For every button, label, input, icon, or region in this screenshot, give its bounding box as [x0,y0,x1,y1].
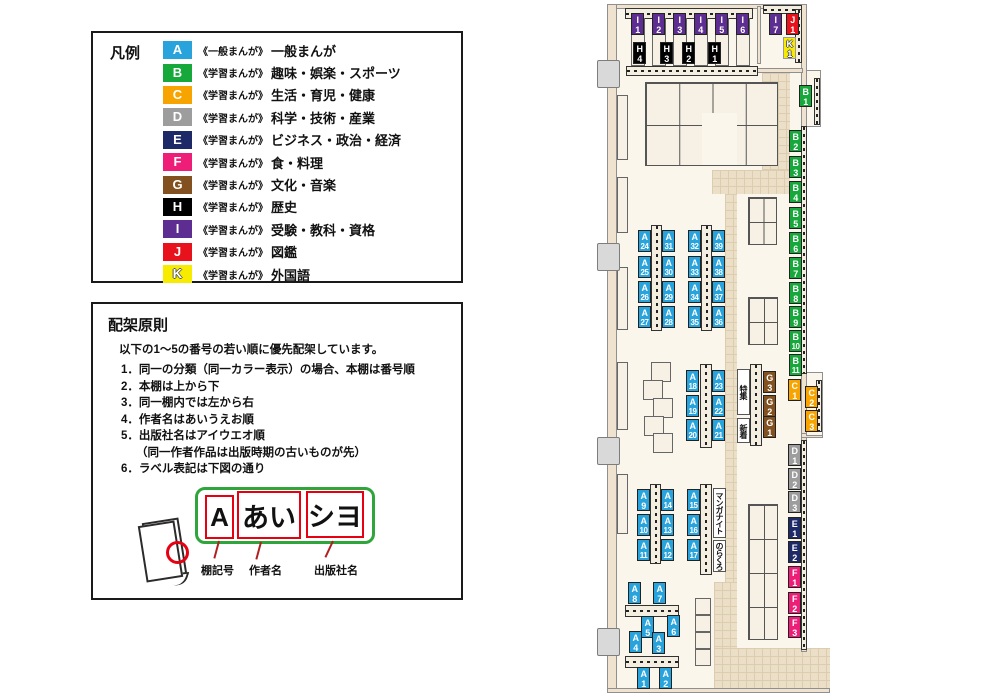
shelf-table [617,267,628,330]
shelf-label-i5: I5 [715,13,728,35]
shelf-dash-strip [750,364,762,446]
shelf-label-a19: A19 [686,395,699,417]
shelf-label-a6: A6 [667,615,680,637]
shelf-label-a22: A22 [712,395,725,417]
page: 凡例 A《一般まんが》一般まんがB《学習まんが》趣味・娯楽・スポーツC《学習まん… [0,0,1000,700]
shelf-label-c2: C2 [805,386,818,408]
shelf-label-b4: B4 [789,181,802,203]
wall-segment [757,68,803,73]
shelf-label-a21: A21 [712,419,725,441]
shelf-label-i3: I3 [673,13,686,35]
floor-patch [702,113,737,165]
shelf-label-j1: J1 [786,13,799,35]
area-label-manga-night: マンガナイト [713,488,726,538]
door [597,437,620,465]
shelf-label-b5: B5 [789,207,802,229]
shelf-label-e2: E2 [788,541,801,563]
shelf-label-i4: I4 [694,13,707,35]
shelf-label-a36: A36 [712,306,725,328]
shelf-unit [748,197,777,245]
shelf-label-a16: A16 [687,514,700,536]
shelf-label-a32: A32 [688,230,701,252]
shelf-dash-strip [650,484,661,564]
shelf-label-d2: D2 [788,468,801,490]
shelf-table [617,474,628,534]
shelf-label-h3: H3 [660,42,673,64]
shelf-label-a10: A10 [637,514,650,536]
shelf-label-b1: B1 [799,85,812,107]
shelf-label-b7: B7 [789,257,802,279]
shelf-label-a8: A8 [628,582,641,604]
shelf-label-b2: B2 [789,130,802,152]
shelf-label-h1: H1 [708,42,721,64]
shelf-label-f2: F2 [788,592,801,614]
shelf-label-a30: A30 [662,256,675,278]
shelf-label-a39: A39 [712,230,725,252]
shelf-label-a29: A29 [662,281,675,303]
shelf-label-a15: A15 [687,489,700,511]
shelf-label-i1: I1 [631,13,644,35]
shelf-table [643,380,663,400]
area-label-featured: 特集 [737,369,750,415]
shelf-dash-strip [651,225,662,331]
shelf-label-a2: A2 [659,667,672,689]
shelf-table [617,177,628,233]
shelf-label-a14: A14 [661,489,674,511]
area-label-new-arrivals: 新着 [737,418,750,443]
shelf-label-c3: C3 [805,410,818,432]
shelf-label-b11: B11 [789,354,802,376]
shelf-label-d3: D3 [788,491,801,513]
shelf-dash-strip [626,66,758,76]
shelf-table [617,362,628,430]
walkway [714,582,737,652]
shelf-label-d1: D1 [788,444,801,466]
shelf-dash-strip [700,364,712,448]
shelf-label-a12: A12 [661,539,674,561]
shelf-label-b9: B9 [789,306,802,328]
shelf-table [695,632,711,649]
shelf-label-a25: A25 [638,256,651,278]
walkway [712,170,790,194]
shelf-unit [748,504,778,640]
shelf-dash-strip [801,440,807,650]
wall-segment [757,6,761,64]
shelf-label-a35: A35 [688,306,701,328]
shelf-label-a1: A1 [637,667,650,689]
shelf-label-a20: A20 [686,419,699,441]
walkway [725,194,737,586]
shelf-label-b10: B10 [789,330,802,352]
shelf-label-a7: A7 [653,582,666,604]
shelf-label-h2: H2 [682,42,695,64]
shelf-table [695,598,711,615]
shelf-label-a4: A4 [629,631,642,653]
walkway [714,648,830,688]
shelf-table [651,362,671,382]
shelf-label-i2: I2 [652,13,665,35]
shelf-table [617,95,628,160]
shelf-label-a23: A23 [712,370,725,392]
shelf-label-g3: G3 [763,371,776,393]
shelf-label-a33: A33 [688,256,701,278]
shelf-table [653,433,673,453]
shelf-label-a38: A38 [712,256,725,278]
shelf-label-g1: G1 [763,416,776,438]
door [597,628,620,656]
shelf-table [695,649,711,666]
shelf-label-k1: K1 [783,37,796,59]
shelf-label-a31: A31 [662,230,675,252]
shelf-label-i7: I7 [769,13,782,35]
shelf-label-a13: A13 [661,514,674,536]
shelf-label-c1: C1 [788,379,801,401]
shelf-label-h4: H4 [633,42,646,64]
shelf-label-e1: E1 [788,517,801,539]
shelf-label-a3: A3 [652,632,665,654]
shelf-unit [748,297,778,345]
shelf-label-a37: A37 [712,281,725,303]
wall-segment [607,4,617,693]
floor-map: I1I2I3I4I5I6I7J1K1H4H3H2H1B1B2B3B4B5B6B7… [0,0,1000,700]
shelf-label-b6: B6 [789,232,802,254]
shelf-label-a27: A27 [638,306,651,328]
shelf-label-a34: A34 [688,281,701,303]
shelf-label-b8: B8 [789,282,802,304]
shelf-label-a17: A17 [687,539,700,561]
shelf-label-f1: F1 [788,566,801,588]
shelf-label-a26: A26 [638,281,651,303]
door [597,60,620,88]
shelf-dash-strip [700,484,712,575]
shelf-table [695,615,711,632]
shelf-dash-strip [814,78,820,125]
shelf-label-f3: F3 [788,616,801,638]
shelf-label-a9: A9 [637,489,650,511]
door [597,243,620,271]
area-label-norakuro: のらくろ [713,540,726,572]
shelf-dash-strip [701,225,712,331]
shelf-label-a24: A24 [638,230,651,252]
shelf-label-a28: A28 [662,306,675,328]
shelf-label-a11: A11 [637,539,650,561]
shelf-table [653,398,673,418]
shelf-label-a18: A18 [686,370,699,392]
shelf-label-i6: I6 [736,13,749,35]
shelf-label-b3: B3 [789,156,802,178]
shelf-label-g2: G2 [763,395,776,417]
